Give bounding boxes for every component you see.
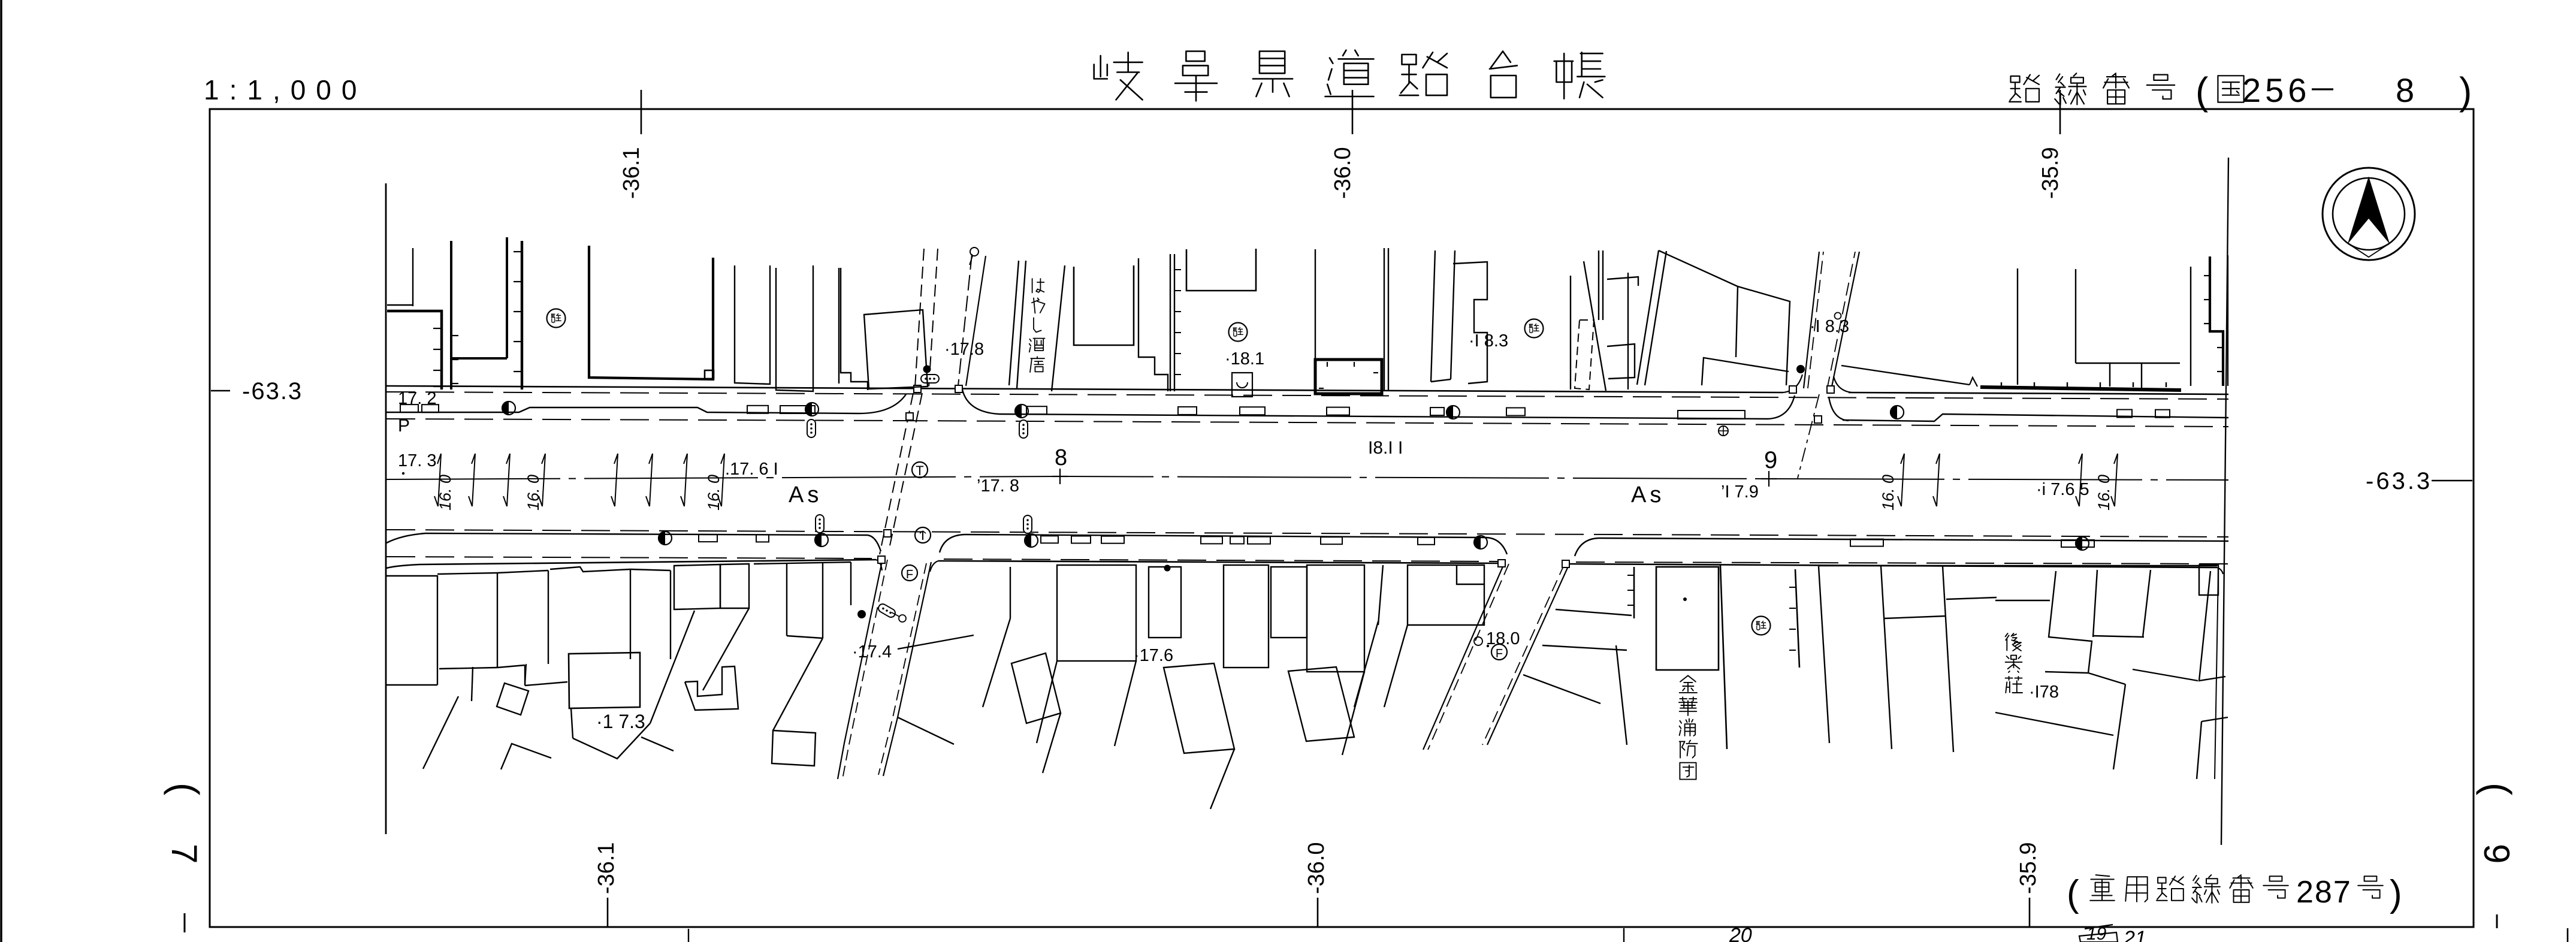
svg-text:·17.4: ·17.4 (852, 642, 892, 662)
svg-text:20: 20 (1729, 924, 1752, 942)
svg-text:9: 9 (1764, 447, 1777, 473)
svg-text:·17.8: ·17.8 (944, 340, 984, 359)
svg-text:-63.3: -63.3 (242, 378, 303, 404)
svg-text:8: 8 (1055, 445, 1067, 470)
svg-text:-36.1: -36.1 (594, 842, 619, 894)
svg-text:16. 0: 16. 0 (705, 475, 723, 511)
svg-text:T: T (916, 463, 923, 478)
svg-text:-36.0: -36.0 (1304, 842, 1329, 894)
svg-text:-35.9: -35.9 (2016, 842, 2041, 894)
svg-text:(: ( (2067, 873, 2079, 914)
svg-text:(: ( (2476, 783, 2519, 795)
svg-text:’17. 8: ’17. 8 (977, 476, 1019, 496)
svg-text:F: F (906, 568, 913, 581)
svg-text:·I 8.3: ·I 8.3 (1469, 331, 1508, 351)
svg-text:17. 3: 17. 3 (398, 451, 437, 470)
svg-text:8: 8 (2396, 71, 2414, 109)
svg-text:(: ( (2196, 70, 2208, 113)
svg-text:16. 0: 16. 0 (1879, 475, 1897, 511)
svg-text:1:1,000: 1:1,000 (204, 74, 367, 105)
svg-text:16. 0: 16. 0 (436, 475, 454, 511)
svg-text:P: P (398, 416, 410, 436)
svg-text:-36.0: -36.0 (1330, 147, 1355, 199)
svg-text:17. 2: 17. 2 (398, 389, 437, 408)
svg-text:·i 7.6 5: ·i 7.6 5 (2036, 480, 2089, 499)
svg-text:F: F (1496, 647, 1503, 660)
svg-text:9: 9 (2477, 844, 2517, 864)
svg-text:-35.9: -35.9 (2038, 147, 2063, 199)
svg-text:7: 7 (164, 844, 204, 864)
svg-text:): ) (2390, 873, 2402, 914)
svg-text:As: As (789, 482, 822, 508)
svg-text:.17. 6 I: .17. 6 I (725, 460, 778, 479)
svg-text:I8.I I: I8.I I (1368, 438, 1403, 458)
svg-text:·1 7.3: ·1 7.3 (596, 711, 645, 732)
svg-text:-36.1: -36.1 (619, 147, 644, 199)
svg-text:287: 287 (2296, 875, 2352, 910)
svg-text:16. 0: 16. 0 (2095, 475, 2113, 511)
svg-text:·17.6: ·17.6 (1134, 646, 1173, 665)
svg-text:’I 7.9: ’I 7.9 (1721, 482, 1759, 502)
svg-text:(: ( (164, 783, 207, 795)
svg-text:): ) (2459, 70, 2472, 113)
svg-text:As: As (1631, 482, 1665, 508)
svg-text:-63.3: -63.3 (2366, 468, 2432, 494)
svg-text:·I 8.3: ·I 8.3 (1810, 317, 1849, 336)
svg-text:16. 0: 16. 0 (524, 475, 542, 511)
svg-text:21: 21 (2123, 927, 2146, 942)
svg-text:256: 256 (2242, 71, 2311, 109)
svg-text:·I78: ·I78 (2029, 683, 2059, 702)
svg-text:·18.1: ·18.1 (1225, 349, 1264, 369)
